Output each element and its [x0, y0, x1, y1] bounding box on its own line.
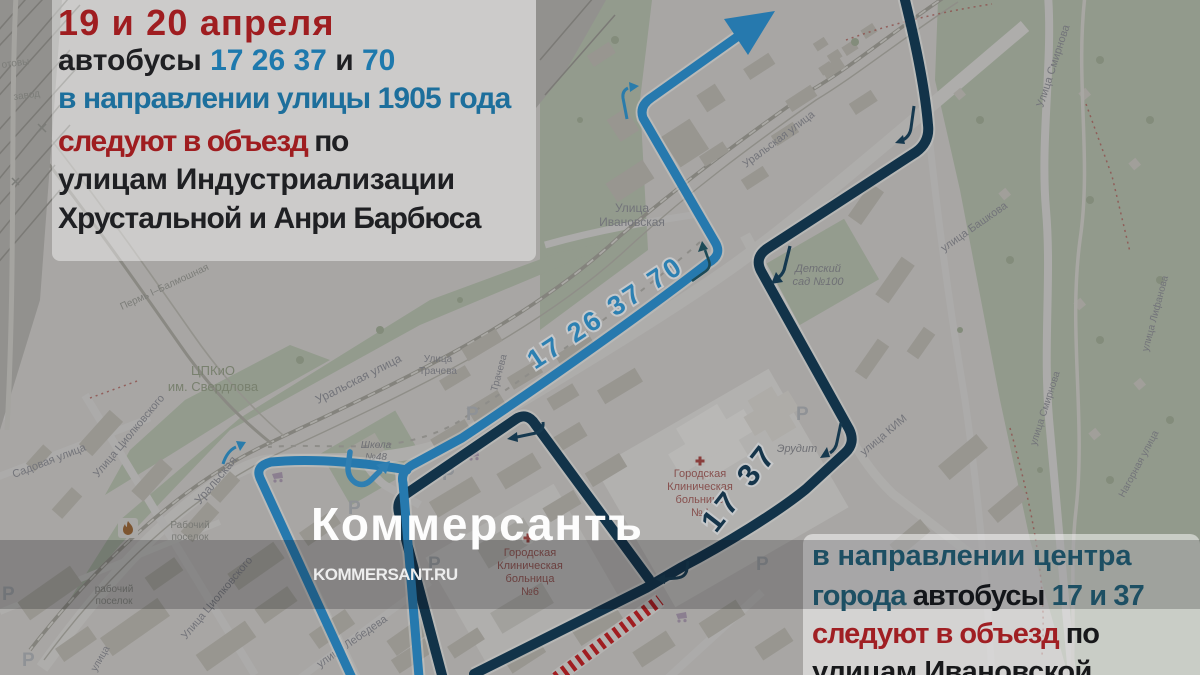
- svg-text:Школа: Школа: [361, 440, 392, 451]
- svg-text:Р: Р: [22, 650, 35, 671]
- svg-text:Трачева: Трачева: [419, 366, 457, 377]
- svg-text:Ивановская: Ивановская: [599, 215, 665, 229]
- svg-text:Рабочий: Рабочий: [170, 519, 209, 531]
- svg-text:ЦПКиО: ЦПКиО: [191, 363, 235, 378]
- svg-text:сад №100: сад №100: [792, 276, 844, 288]
- svg-text:Р: Р: [796, 404, 809, 425]
- svg-text:Детский: Детский: [793, 263, 841, 275]
- svg-text:Улица: Улица: [615, 201, 649, 215]
- svg-text:Улица: Улица: [424, 354, 453, 365]
- svg-text:Городская: Городская: [674, 468, 726, 480]
- svg-text:им. Свердлова: им. Свердлова: [168, 379, 259, 394]
- svg-text:Эрудит: Эрудит: [777, 443, 817, 455]
